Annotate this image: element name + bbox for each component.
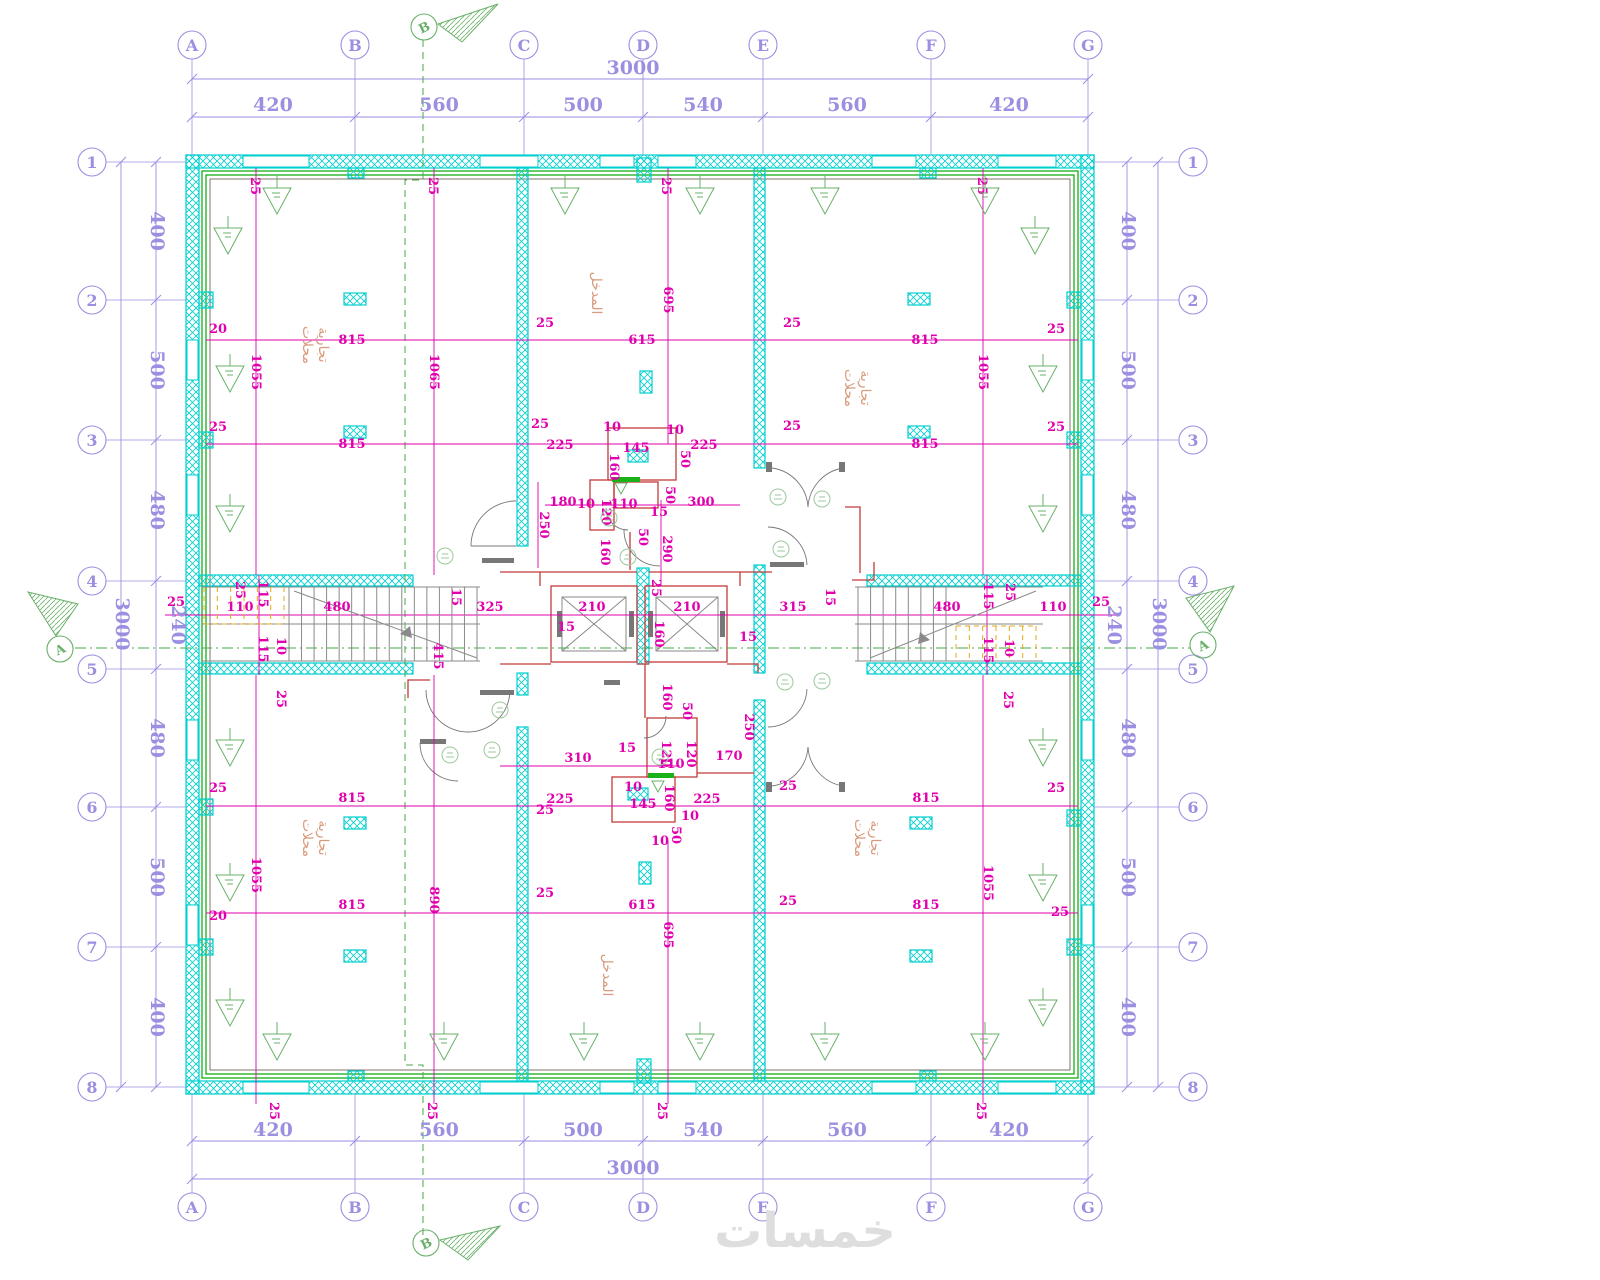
shape (579, 1039, 587, 1043)
dimension-label: 10 (666, 423, 684, 438)
shape (980, 1039, 988, 1043)
shape (446, 753, 454, 757)
dimension-label: 25 (1000, 691, 1015, 709)
room-label: تجارية (315, 327, 331, 362)
dimension-label: 115 (255, 580, 270, 607)
grid-bubble-label: C (518, 36, 531, 55)
dimension-label: 25 (783, 419, 801, 434)
door-tag-icon (777, 674, 793, 690)
dimension-label: 20 (209, 322, 227, 337)
shape (1029, 506, 1057, 532)
shape (1029, 1000, 1057, 1026)
axis-dimension-label: 3000 (607, 1157, 660, 1179)
dimension-label: 25 (273, 690, 288, 708)
floor-plan-canvas: AABBCCDDEEFFGG11223344556677883000420560… (0, 0, 1600, 1280)
shape (488, 748, 496, 752)
room-label: محلات (299, 819, 315, 857)
dimension-label: 15 (650, 505, 668, 520)
axis-dimension-label: 500 (146, 857, 168, 897)
shape (225, 1005, 233, 1009)
shape (496, 708, 504, 712)
dimension-label: 225 (693, 792, 720, 807)
shape (225, 371, 233, 375)
dimension-label: 1055 (980, 865, 995, 901)
axis-dimension-label: 240 (167, 605, 189, 645)
dimension-label: 25 (209, 420, 227, 435)
dimension-label: 10 (624, 780, 642, 795)
dimension-label: 25 (247, 177, 262, 195)
axis-dimension-label: 3000 (111, 598, 133, 651)
wall-tag-icon (1029, 494, 1057, 532)
dimension-label: 10 (681, 809, 699, 824)
dimension-label: 210 (578, 600, 605, 615)
axis-dimension-label: 420 (253, 94, 293, 116)
wall-tag-icon (263, 176, 291, 214)
room-label: تجارية (315, 820, 331, 855)
dimension-label: 25 (536, 803, 554, 818)
axis-dimension-label: 420 (253, 1119, 293, 1141)
wall-tag-icon (1029, 354, 1057, 392)
shape (272, 1039, 280, 1043)
dimension-label: 210 (673, 600, 700, 615)
shape (814, 673, 830, 689)
shape (820, 193, 828, 197)
dimension-label: 160 (659, 683, 674, 710)
wall-tag-icon (1029, 863, 1057, 901)
shape (777, 674, 793, 690)
dimension-label: 25 (648, 579, 663, 597)
dimension-label: 250 (741, 713, 756, 740)
dimension-label: 25 (779, 894, 797, 909)
axis-dimension-label: 420 (989, 1119, 1029, 1141)
shape (438, 4, 498, 42)
dimension-label: 50 (668, 826, 683, 844)
shape (695, 193, 703, 197)
room-label: تجارية (867, 820, 883, 855)
dimension-label: 290 (659, 535, 674, 562)
dimension-label: 225 (546, 438, 573, 453)
shape (263, 1034, 291, 1060)
shape (570, 1034, 598, 1060)
grid-bubble-label: B (348, 1198, 362, 1217)
dimension-label: 310 (564, 751, 591, 766)
grid-bubble-label: E (757, 36, 769, 55)
dimension-label: 110 (226, 600, 253, 615)
shape (686, 188, 714, 214)
dimension-label: 615 (628, 333, 655, 348)
shape (216, 366, 244, 392)
section-marker-label: B (416, 19, 432, 37)
shape (620, 549, 636, 565)
grid-bubble-label: 8 (86, 1078, 97, 1097)
grid-bubble-label: 1 (1187, 153, 1198, 172)
dimension-label: 1065 (426, 354, 441, 390)
axis-dimension-label: 560 (827, 94, 867, 116)
wall-tag-icon (263, 1022, 291, 1060)
grid-bubble-label: 6 (86, 798, 97, 817)
dimension-label: 695 (660, 286, 675, 313)
grid-bubble-label: 5 (1187, 660, 1198, 679)
door-tag-icon (492, 702, 508, 718)
dimension-label: 25 (209, 781, 227, 796)
dimension-label: 25 (232, 581, 247, 599)
dimension-label: 10 (273, 637, 288, 655)
dimension-label: 225 (690, 438, 717, 453)
axis-dimension-label: 560 (419, 94, 459, 116)
door-tag-icon (620, 549, 636, 565)
dimension-label: 25 (536, 886, 554, 901)
axis-dimension-label: 500 (1117, 350, 1139, 390)
dimension-label: 815 (912, 791, 939, 806)
shape (263, 188, 291, 214)
watermark-text: خمسات (645, 1203, 965, 1259)
wall-tag-icon (686, 1022, 714, 1060)
dimension-label: 1055 (248, 857, 263, 893)
door-tag-icon (770, 489, 786, 505)
dimension-label: 160 (606, 453, 621, 480)
dimension-label: 25 (1047, 322, 1065, 337)
dimension-label: 50 (677, 450, 692, 468)
wall-tag-icon (216, 863, 244, 901)
dimension-label: 120 (683, 740, 698, 767)
dimension-label: 815 (911, 333, 938, 348)
grid-bubble-label: 2 (86, 291, 97, 310)
shape (686, 1034, 714, 1060)
stairs (202, 587, 1043, 661)
shape (1029, 366, 1057, 392)
section-marker-label: B (418, 1235, 434, 1253)
dimension-label: 15 (822, 588, 837, 606)
grid-bubble-label: G (1081, 1198, 1095, 1217)
dimension-label: 25 (783, 316, 801, 331)
axis-dimension-label: 400 (1117, 211, 1139, 251)
wall-tag-icon (686, 176, 714, 214)
wall-tag-icon (1029, 988, 1057, 1026)
shape (1038, 745, 1046, 749)
dimension-label: 315 (779, 600, 806, 615)
axis-dimension-label: 500 (146, 350, 168, 390)
dimension-label: 20 (209, 909, 227, 924)
dimension-label: 160 (651, 620, 666, 647)
section-marker-A: A (28, 592, 78, 662)
shape (971, 1034, 999, 1060)
dimension-label: 815 (338, 791, 365, 806)
axis-dimension-label: 480 (1117, 718, 1139, 758)
dimension-label: 815 (911, 437, 938, 452)
shape (560, 193, 568, 197)
dimension-label: 25 (266, 1102, 281, 1120)
dimension-label: 10 (603, 420, 621, 435)
shape (225, 880, 233, 884)
shape (624, 555, 632, 559)
shape (811, 188, 839, 214)
section-marker-label: A (1195, 637, 1212, 656)
shape (1038, 371, 1046, 375)
axis-dimension-label: 540 (683, 94, 723, 116)
door-tag-icon (442, 747, 458, 763)
door-tag-icon (814, 673, 830, 689)
grid-bubble-label: 3 (86, 431, 97, 450)
room-label: المدخل (588, 272, 604, 315)
shape (440, 1226, 500, 1260)
dimension-label: 815 (338, 437, 365, 452)
dimension-label: 25 (974, 177, 989, 195)
dimension-label: 15 (739, 630, 757, 645)
grid-bubble-label: 7 (1187, 938, 1198, 957)
dimension-label: 25 (1051, 905, 1069, 920)
dimension-label: 25 (531, 417, 549, 432)
wall-tag-icon (551, 176, 579, 214)
shape (770, 489, 786, 505)
shape (28, 592, 78, 636)
grid-bubble-label: 1 (86, 153, 97, 172)
dimension-label: 25 (424, 1102, 439, 1120)
shape (774, 495, 782, 499)
grid-bubble-label: 5 (86, 660, 97, 679)
shape (814, 491, 830, 507)
door-tag-icon (437, 548, 453, 564)
axis-dimension-label: 480 (146, 718, 168, 758)
grid-bubble-label: F (925, 36, 937, 55)
axis-dimension-label: 400 (146, 211, 168, 251)
dimension-label: 890 (426, 886, 441, 913)
shape (1029, 875, 1057, 901)
shape (818, 679, 826, 683)
axis-dimension-label: 240 (1103, 605, 1125, 645)
dimension-label: 25 (167, 595, 185, 610)
shape (781, 680, 789, 684)
dimension-label: 815 (338, 898, 365, 913)
axis-dimension-label: 560 (827, 1119, 867, 1141)
dimension-label: 325 (476, 600, 503, 615)
axis-dimension-label: 500 (563, 94, 603, 116)
shape (1021, 228, 1049, 254)
wall-tag-icon (570, 1022, 598, 1060)
shape (1038, 511, 1046, 515)
dimension-label: 170 (715, 749, 742, 764)
wall-tag-icon (1021, 216, 1049, 254)
grid-bubble-label: 7 (86, 938, 97, 957)
axis-dimension-label: 480 (1117, 490, 1139, 530)
shape (437, 548, 453, 564)
grid-bubble-label: 4 (1187, 572, 1198, 591)
grid-bubble-label: 4 (86, 572, 97, 591)
room-label: محلات (299, 326, 315, 364)
dimension-label: 50 (662, 486, 677, 504)
dimension-label: 115 (980, 582, 995, 609)
dimension-label: 115 (255, 635, 270, 662)
dimension-label: 25 (654, 1102, 669, 1120)
grid-bubble-label: 3 (1187, 431, 1198, 450)
dimension-label: 480 (323, 600, 350, 615)
dimension-label: 15 (557, 620, 575, 635)
shape (216, 740, 244, 766)
grid-bubble-label: A (185, 1198, 199, 1217)
dimension-label: 160 (661, 784, 676, 811)
dimension-label: 1055 (248, 354, 263, 390)
shape (216, 1000, 244, 1026)
shape (223, 233, 231, 237)
axis-dimension-label: 400 (146, 997, 168, 1037)
dimension-label: 415 (430, 642, 445, 669)
shape (216, 875, 244, 901)
dimension-label: 25 (779, 779, 797, 794)
wall-tag-icon (811, 1022, 839, 1060)
axis-dimension-label: 480 (146, 490, 168, 530)
dimension-label: 50 (635, 528, 650, 546)
grid-bubble-label: B (348, 36, 362, 55)
dimension-label: 10 (577, 497, 595, 512)
shape (1030, 233, 1038, 237)
dimension-label: 145 (622, 441, 649, 456)
shape (225, 511, 233, 515)
shape (695, 1039, 703, 1043)
stair-direction-arrow (918, 632, 930, 644)
dimension-label: 815 (338, 333, 365, 348)
shape (1038, 1005, 1046, 1009)
section-marker-B: B (413, 1226, 500, 1260)
dimension-label: 15 (618, 741, 636, 756)
shape (773, 541, 789, 557)
dimension-label: 25 (1047, 420, 1065, 435)
dimension-label: 145 (629, 797, 656, 812)
axis-dimension-label: 540 (683, 1119, 723, 1141)
shape (272, 193, 280, 197)
axis-dimension-label: 500 (1117, 857, 1139, 897)
shape (441, 554, 449, 558)
dimension-label: 300 (687, 495, 714, 510)
axis-dimension-label: 420 (989, 94, 1029, 116)
dimension-label: 25 (1092, 595, 1110, 610)
dimension-label: 25 (425, 177, 440, 195)
axis-dimension-label: 560 (419, 1119, 459, 1141)
axis-dimension-label: 500 (563, 1119, 603, 1141)
dimension-label: 110 (1039, 600, 1066, 615)
wall-tag-icon (1029, 728, 1057, 766)
axis-dimension-label: 400 (1117, 997, 1139, 1037)
grid-bubble-label: 6 (1187, 798, 1198, 817)
shape (811, 1034, 839, 1060)
shape (777, 547, 785, 551)
dimension-label: 695 (660, 921, 675, 948)
shape (484, 742, 500, 758)
grid-bubble-label: 2 (1187, 291, 1198, 310)
shape (1029, 740, 1057, 766)
section-marker-B: B (411, 4, 498, 42)
dimension-label: 110 (610, 497, 637, 512)
wall-tag-icon (216, 728, 244, 766)
grid-bubble-label: G (1081, 36, 1095, 55)
wall-tag-icon (214, 216, 242, 254)
dimension-label: 50 (679, 702, 694, 720)
axis-dimension-label: 3000 (607, 57, 660, 79)
dimension-label: 15 (448, 588, 463, 606)
shape (818, 497, 826, 501)
dimension-label: 480 (933, 600, 960, 615)
room-label: محلات (841, 369, 857, 407)
axis-dimension-label: 3000 (1148, 598, 1170, 651)
dimension-label: 25 (973, 1102, 988, 1120)
dimension-label: 250 (536, 511, 551, 538)
grid-bubble-label: D (636, 36, 650, 55)
room-label: محلات (851, 819, 867, 857)
shape (439, 1039, 447, 1043)
room-label: تجارية (857, 370, 873, 405)
wall-tag-icon (216, 354, 244, 392)
dimension-label: 115 (980, 636, 995, 663)
section-marker-A: A (1186, 586, 1234, 658)
shape (820, 1039, 828, 1043)
dimension-label: 615 (628, 898, 655, 913)
wall-tag-icon (216, 988, 244, 1026)
shape (492, 702, 508, 718)
room-label: المدخل (599, 954, 615, 997)
dimension-label: 160 (597, 538, 612, 565)
dimension-label: 1055 (975, 354, 990, 390)
shape (1186, 586, 1234, 632)
dimension-label: 25 (1047, 781, 1065, 796)
section-marker-label: A (52, 641, 69, 660)
door-tag-icon (484, 742, 500, 758)
wall-tag-icon (216, 494, 244, 532)
grid-bubble-label: 8 (1187, 1078, 1198, 1097)
dimension-label: 10 (651, 834, 669, 849)
shape (225, 745, 233, 749)
shape (442, 747, 458, 763)
shape (1038, 880, 1046, 884)
grid-bubble-label: A (185, 36, 199, 55)
shape (216, 506, 244, 532)
shape (214, 228, 242, 254)
wall-tag-icon (811, 176, 839, 214)
shape (551, 188, 579, 214)
floor-plan-page: AABBCCDDEEFFGG11223344556677883000420560… (0, 0, 1600, 1280)
door-tag-icon (814, 491, 830, 507)
door-tag-icon (773, 541, 789, 557)
dimension-label: 25 (536, 316, 554, 331)
wall-tag-icon (971, 1022, 999, 1060)
dimension-label: 25 (1002, 583, 1017, 601)
dimension-label: 25 (658, 177, 673, 195)
dimension-label: 815 (912, 898, 939, 913)
dimension-label: 10 (1001, 639, 1016, 657)
grid-bubble-label: C (518, 1198, 531, 1217)
dimension-label: 180 (549, 495, 576, 510)
